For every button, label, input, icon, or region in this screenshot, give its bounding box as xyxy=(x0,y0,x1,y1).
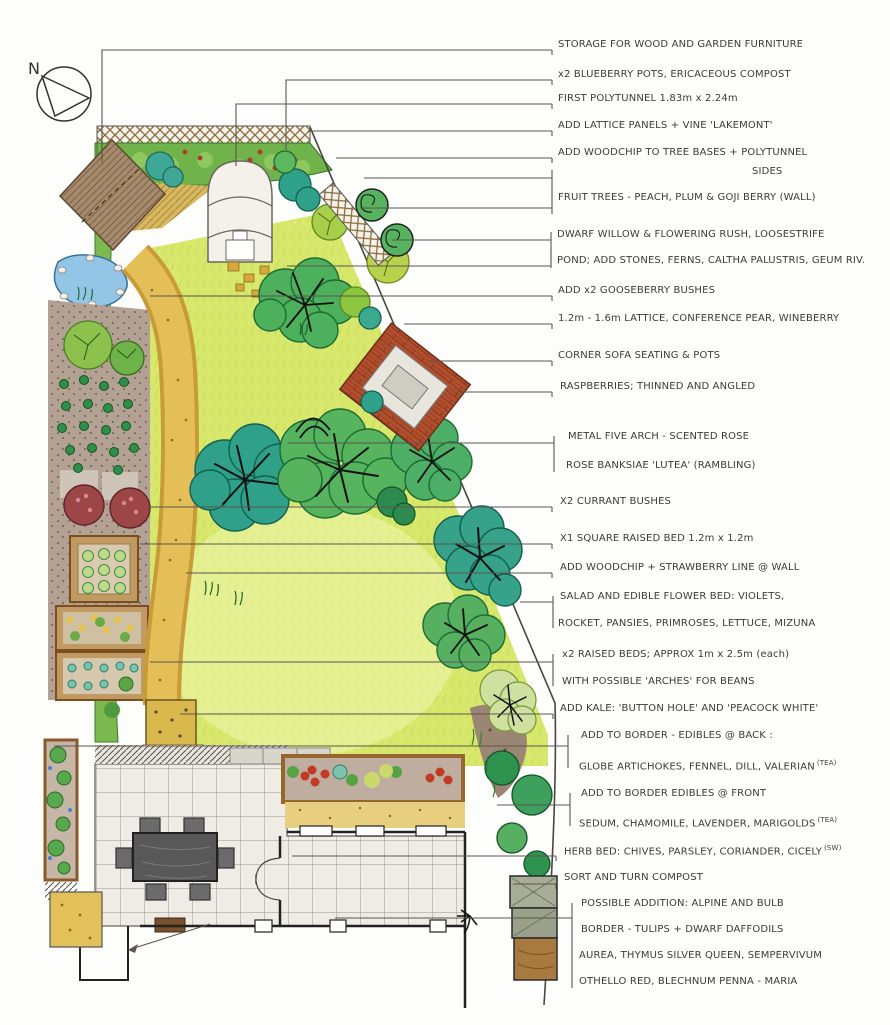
annotation-border-back-2: GLOBE ARTICHOKES, FENNEL, DILL, VALERIAN… xyxy=(579,757,837,773)
dining-table xyxy=(133,833,217,881)
annotation-rose-banksiae: ROSE BANKSIAE 'LUTEA' (RAMBLING) xyxy=(566,459,756,472)
top-lattice xyxy=(97,126,310,143)
annotation-lattice-vine: ADD LATTICE PANELS + VINE 'LAKEMONT' xyxy=(558,119,773,132)
annotation-currants: X2 CURRANT BUSHES xyxy=(560,495,671,508)
annotation-metal-arch: METAL FIVE ARCH - SCENTED ROSE xyxy=(568,430,749,443)
sofa-pot-bush xyxy=(361,391,383,413)
annotation-raised-beds-2: WITH POSSIBLE 'ARCHES' FOR BEANS xyxy=(562,675,755,688)
tea-superscript: (TEA) xyxy=(817,816,837,824)
annotation-salad-bed-1: SALAD AND EDIBLE FLOWER BED: VIOLETS, xyxy=(560,590,784,603)
annotation-alpine-1: POSSIBLE ADDITION: ALPINE AND BULB xyxy=(581,897,784,910)
garden-design-sheet: N STORAGE FOR WOOD AND GARDEN FURNITURE … xyxy=(0,0,890,1025)
annotation-kale: ADD KALE: 'BUTTON HOLE' AND 'PEACOCK WHI… xyxy=(560,702,818,715)
annotation-dwarf-willow: DWARF WILLOW & FLOWERING RUSH, LOOSESTRI… xyxy=(557,228,825,241)
polytunnel xyxy=(208,161,272,262)
annotation-polytunnel: FIRST POLYTUNNEL 1.83m x 2.24m xyxy=(558,92,738,105)
annotation-square-bed: X1 SQUARE RAISED BED 1.2m x 1.2m xyxy=(560,532,754,545)
annotation-alpine-4: OTHELLO RED, BLECHNUM PENNA - MARIA xyxy=(579,975,797,988)
annotation-sides: SIDES xyxy=(752,165,782,178)
bottom-veg-bed xyxy=(283,756,463,802)
compost-square xyxy=(146,700,196,746)
annotation-corner-sofa: CORNER SOFA SEATING & POTS xyxy=(558,349,720,362)
annotation-border-back-1: ADD TO BORDER - EDIBLES @ BACK : xyxy=(581,729,773,742)
compost-bins xyxy=(510,876,557,980)
sw-superscript: (SW) xyxy=(824,844,841,852)
annotation-salad-bed-2: ROCKET, PANSIES, PRIMROSES, LETTUCE, MIZ… xyxy=(558,617,815,630)
annotation-alpine-2: BORDER - TULIPS + DWARF DAFFODILS xyxy=(581,923,784,936)
annotation-gooseberry: ADD x2 GOOSEBERRY BUSHES xyxy=(558,284,715,297)
raised-beds xyxy=(56,606,148,700)
annotation-compost: SORT AND TURN COMPOST xyxy=(564,871,703,884)
annotation-raised-beds-1: x2 RAISED BEDS; APPROX 1m x 2.5m (each) xyxy=(562,648,789,661)
north-label: N xyxy=(28,59,40,78)
annotation-blueberry-pots: x2 BLUEBERRY POTS, ERICACEOUS COMPOST xyxy=(558,68,791,81)
annotation-storage: STORAGE FOR WOOD AND GARDEN FURNITURE xyxy=(558,38,803,51)
annotation-raspberries: RASPBERRIES; THINNED AND ANGLED xyxy=(560,380,755,393)
annotation-pond: POND; ADD STONES, FERNS, CALTHA PALUSTRI… xyxy=(557,254,865,267)
annotation-lattice-pear: 1.2m - 1.6m LATTICE, CONFERENCE PEAR, WI… xyxy=(558,312,839,325)
annotation-woodchip-bases: ADD WOODCHIP TO TREE BASES + POLYTUNNEL xyxy=(558,146,807,159)
annotation-fruit-trees: FRUIT TREES - PEACH, PLUM & GOJI BERRY (… xyxy=(558,191,816,204)
annotation-border-front-2: SEDUM, CHAMOMILE, LAVENDER, MARIGOLDS(TE… xyxy=(579,814,837,830)
annotation-border-front-1: ADD TO BORDER EDIBLES @ FRONT xyxy=(581,787,766,800)
square-raised-bed xyxy=(70,536,138,602)
annotation-strawberry: ADD WOODCHIP + STRAWBERRY LINE @ WALL xyxy=(560,561,799,574)
sand-strip xyxy=(285,802,465,828)
tea-superscript: (TEA) xyxy=(817,759,837,767)
annotation-herb-bed: HERB BED: CHIVES, PARSLEY, CORIANDER, CI… xyxy=(564,842,841,858)
annotation-alpine-3: AUREA, THYMUS SILVER QUEEN, SEMPERVIVUM xyxy=(579,949,822,962)
